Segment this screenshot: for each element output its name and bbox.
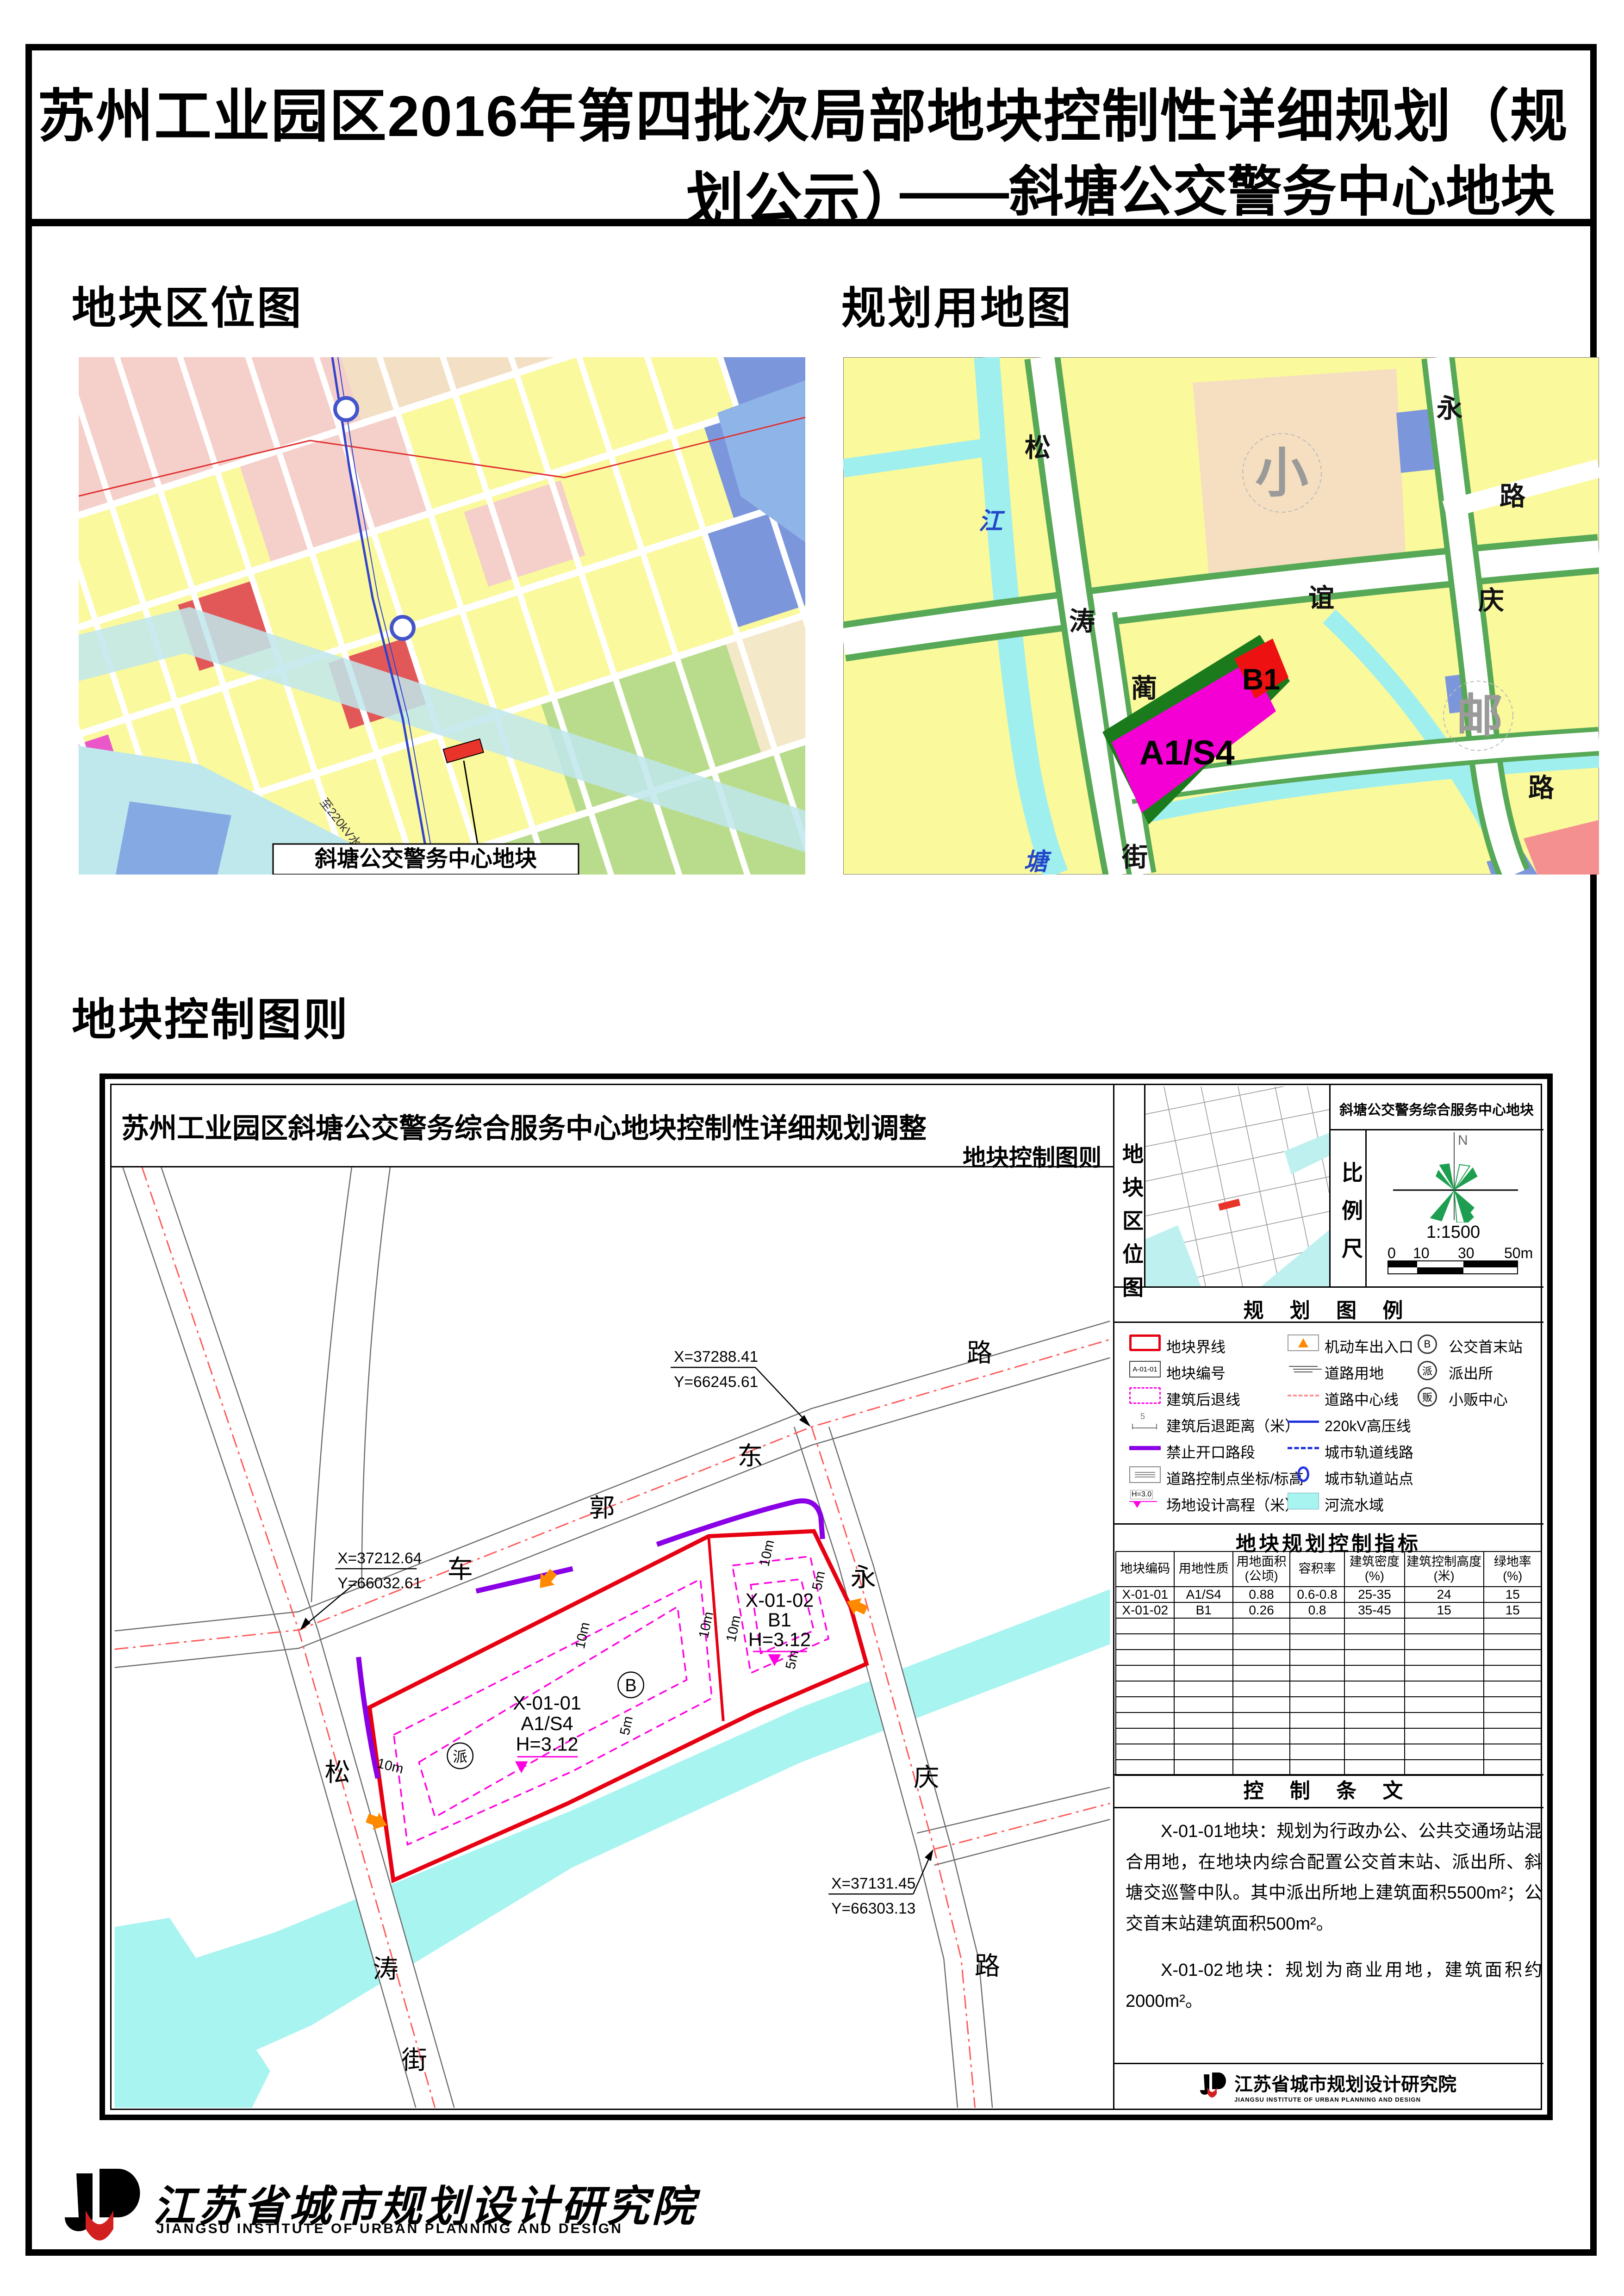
roadcenter-icon bbox=[1288, 1387, 1319, 1404]
legend-label: 道路控制点坐标/标高 bbox=[1166, 1467, 1304, 1489]
scale-tick: 10 bbox=[1413, 1245, 1430, 1262]
legend-label: 城市轨道站点 bbox=[1325, 1467, 1413, 1489]
coord-label: Y=66245.61 bbox=[674, 1374, 758, 1391]
legend-label: 机动车出入口 bbox=[1325, 1335, 1413, 1357]
setback-icon bbox=[1129, 1387, 1161, 1404]
table-header: 建筑控制高度(米) bbox=[1405, 1551, 1484, 1587]
institute-logo bbox=[1200, 2072, 1227, 2100]
hawker-icon: 贩 bbox=[1412, 1387, 1443, 1404]
boundary-icon bbox=[1129, 1334, 1161, 1351]
legend-label: 小贩中心 bbox=[1449, 1388, 1508, 1409]
police-icon: 派 bbox=[1412, 1361, 1443, 1378]
road-char: 街 bbox=[1121, 843, 1148, 872]
scale-tick: 50m bbox=[1504, 1245, 1533, 1262]
road-char: 东 bbox=[737, 1442, 763, 1471]
legend-label: 河流水域 bbox=[1325, 1494, 1384, 1515]
coord-label: X=37288.41 bbox=[674, 1348, 758, 1365]
table-cell: 25-35 bbox=[1344, 1587, 1405, 1602]
metrostation-icon bbox=[1288, 1466, 1319, 1483]
road-char: 永 bbox=[851, 1563, 876, 1592]
bus-terminal-mark: B bbox=[625, 1675, 637, 1695]
table-header: 用地面积(公顷) bbox=[1233, 1551, 1290, 1587]
road-char: 路 bbox=[975, 1951, 1000, 1980]
river-char: 塘 bbox=[1024, 849, 1052, 875]
table-cell: 0.26 bbox=[1233, 1602, 1290, 1618]
legend-label: 道路用地 bbox=[1325, 1362, 1384, 1383]
institute-block: 江苏省城市规划设计研究院 JIANGSU INSTITUTE OF URBAN … bbox=[1113, 2063, 1543, 2109]
table-header: 容积率 bbox=[1290, 1551, 1344, 1587]
elev-icon: H=3.0 bbox=[1129, 1493, 1161, 1509]
table-row: X-01-01A1/S40.880.6-0.825-352415 bbox=[1116, 1587, 1542, 1602]
table-cell: 15 bbox=[1484, 1602, 1542, 1618]
road-char: 车 bbox=[448, 1555, 473, 1583]
section-landuse-map: 规划用地图 bbox=[841, 272, 1073, 336]
callout-label: 斜塘公交警务中心地块 bbox=[315, 847, 537, 871]
footer-institute-en: JIANGSU INSTITUTE OF URBAN PLANNING AND … bbox=[156, 2221, 623, 2237]
code-icon: A-01-01 bbox=[1129, 1361, 1161, 1378]
panel-mini-map bbox=[1145, 1086, 1329, 1286]
road-char: 永 bbox=[1437, 394, 1462, 423]
river-char: 江 bbox=[978, 508, 1005, 535]
coord-label: X=37212.64 bbox=[337, 1550, 422, 1567]
legend-label: 场地设计高程（米） bbox=[1166, 1494, 1300, 1515]
table-empty-row bbox=[1116, 1728, 1542, 1744]
legend: 地块界线A-01-01地块编号建筑后退线5建筑后退距离（米）禁止开口路段道路控制… bbox=[1113, 1322, 1543, 1523]
location-map: 至220kV水乡变 斜塘公交警务中心地块 bbox=[79, 357, 805, 875]
table-cell: X-01-01 bbox=[1116, 1587, 1174, 1602]
provisions-body: X-01-01地块：规划为行政办公、公共交通场站混合用地，在地块内综合配置公交首… bbox=[1126, 1816, 1542, 2032]
road-char: 涛 bbox=[1069, 607, 1095, 636]
parcel1-height: H=3.12 bbox=[516, 1733, 579, 1755]
table-cell: 0.6-0.8 bbox=[1290, 1587, 1344, 1602]
road-char: 路 bbox=[967, 1338, 992, 1367]
scale-tick: 30 bbox=[1458, 1245, 1475, 1262]
north-compass: N bbox=[1365, 1130, 1543, 1222]
legend-label: 城市轨道线路 bbox=[1325, 1441, 1413, 1462]
road-char: 庆 bbox=[1478, 586, 1504, 615]
parcel2-use: B1 bbox=[768, 1609, 791, 1631]
road-char: 路 bbox=[1528, 773, 1555, 802]
block-char-you: 邮 bbox=[1456, 690, 1503, 742]
table-empty-row bbox=[1116, 1665, 1542, 1681]
table-header: 建筑密度(%) bbox=[1344, 1551, 1405, 1587]
metroline-icon bbox=[1288, 1440, 1319, 1457]
table-empty-row bbox=[1116, 1634, 1542, 1650]
plan-drawing: X=37288.41 Y=66245.61 X=37212.64 Y=66032… bbox=[112, 1167, 1113, 2108]
legend-label: 地块界线 bbox=[1166, 1335, 1226, 1357]
north-label: N bbox=[1458, 1133, 1468, 1148]
table-cell: 15 bbox=[1484, 1587, 1542, 1602]
table-empty-row bbox=[1116, 1744, 1542, 1760]
legend-label: 建筑后退距离（米） bbox=[1166, 1415, 1300, 1436]
legend-label: 地块编号 bbox=[1166, 1362, 1226, 1383]
table-header: 绿地率(%) bbox=[1484, 1551, 1542, 1587]
police-mark: 派 bbox=[453, 1748, 467, 1765]
legend-label: 220kV高压线 bbox=[1325, 1415, 1411, 1436]
road-char: 谊 bbox=[1308, 583, 1334, 613]
legend-label: 道路中心线 bbox=[1325, 1388, 1399, 1409]
entrance-icon bbox=[1288, 1334, 1319, 1351]
parcel-b1-label: B1 bbox=[1242, 663, 1280, 696]
parcel-a1s4-label: A1/S4 bbox=[1139, 733, 1235, 772]
section-location-map: 地块区位图 bbox=[72, 272, 303, 336]
table-empty-row bbox=[1116, 1697, 1542, 1713]
table-empty-row bbox=[1116, 1650, 1542, 1665]
parcel1-code: X-01-01 bbox=[513, 1692, 581, 1714]
provision-2: X-01-02地块：规划为商业用地，建筑面积约2000m²。 bbox=[1126, 1955, 1542, 2017]
table-empty-row bbox=[1116, 1618, 1542, 1634]
provisions-title: 控 制 条 文 bbox=[1113, 1774, 1543, 1804]
parcel1-use: A1/S4 bbox=[521, 1713, 573, 1734]
river-icon bbox=[1288, 1493, 1319, 1509]
table-empty-row bbox=[1116, 1713, 1542, 1728]
road-char: 涛 bbox=[373, 1955, 398, 1983]
institute-name-en: JIANGSU INSTITUTE OF URBAN PLANNING AND … bbox=[1234, 2096, 1456, 2103]
road-char: 松 bbox=[1025, 433, 1051, 462]
section-control-plan: 地块控制图则 bbox=[72, 984, 349, 1048]
ctrlpt-icon bbox=[1129, 1466, 1161, 1483]
control-indicator-table: 地块编码用地性质用地面积(公顷)容积率建筑密度(%)建筑控制高度(米)绿地率(%… bbox=[1115, 1551, 1542, 1776]
coord-label: X=37131.45 bbox=[831, 1875, 915, 1892]
institute-name-cn: 江苏省城市规划设计研究院 bbox=[1234, 2069, 1456, 2096]
table-cell: 15 bbox=[1405, 1602, 1484, 1618]
table-row: X-01-02B10.260.835-451515 bbox=[1116, 1602, 1542, 1618]
panel-title: 斜塘公交警务综合服务中心地块 bbox=[1331, 1088, 1542, 1129]
footer-logo bbox=[65, 2166, 146, 2245]
roadland-icon bbox=[1288, 1361, 1319, 1378]
road-char: 街 bbox=[402, 2046, 427, 2074]
table-empty-row bbox=[1116, 1760, 1542, 1775]
busstop-icon: B bbox=[1412, 1334, 1443, 1351]
page-subtitle: ——斜塘公交警务中心地块 bbox=[32, 147, 1555, 226]
table-cell: 0.88 bbox=[1233, 1587, 1290, 1602]
provision-1: X-01-01地块：规划为行政办公、公共交通场站混合用地，在地块内综合配置公交首… bbox=[1126, 1816, 1542, 1939]
block-char-xiao: 小 bbox=[1255, 444, 1308, 503]
scale-ratio: 1:1500 bbox=[1384, 1222, 1523, 1242]
title-divider bbox=[25, 219, 1597, 226]
road-char: 蔺 bbox=[1131, 674, 1157, 703]
table-header: 地块编码 bbox=[1116, 1551, 1174, 1587]
legend-title: 规 划 图 例 bbox=[1113, 1294, 1543, 1323]
table-empty-row bbox=[1116, 1681, 1542, 1697]
road-char: 郭 bbox=[589, 1493, 615, 1522]
legend-label: 派出所 bbox=[1449, 1362, 1493, 1383]
metro-station bbox=[392, 617, 414, 639]
coord-label: Y=66303.13 bbox=[831, 1900, 915, 1917]
legend-label: 公交首末站 bbox=[1449, 1335, 1523, 1357]
road-char: 松 bbox=[325, 1758, 350, 1787]
coord-label: Y=66032.61 bbox=[337, 1575, 422, 1592]
table-cell: X-01-02 bbox=[1116, 1602, 1174, 1618]
road-char: 庆 bbox=[914, 1763, 939, 1792]
parcel2-code: X-01-02 bbox=[746, 1589, 814, 1611]
scale-tick: 0 bbox=[1388, 1245, 1396, 1262]
legend-label: 建筑后退线 bbox=[1166, 1388, 1240, 1409]
parcel2-height: H=3.12 bbox=[748, 1628, 811, 1650]
table-cell: 35-45 bbox=[1344, 1602, 1405, 1618]
table-cell: 0.8 bbox=[1290, 1602, 1344, 1618]
metro-station bbox=[335, 398, 357, 420]
table-header: 用地性质 bbox=[1174, 1551, 1232, 1587]
scale-bar: 0103050m bbox=[1388, 1245, 1522, 1277]
panel-scale-label: 比例尺 bbox=[1336, 1161, 1366, 1282]
table-cell: A1/S4 bbox=[1174, 1587, 1232, 1602]
road-char: 路 bbox=[1500, 482, 1526, 511]
table-cell: B1 bbox=[1174, 1602, 1232, 1618]
table-cell: 24 bbox=[1405, 1587, 1484, 1602]
noopen-icon bbox=[1129, 1440, 1161, 1457]
legend-label: 禁止开口路段 bbox=[1166, 1441, 1255, 1462]
poster-page: 苏州工业园区2016年第四批次局部地块控制性详细规划（规划公示） ——斜塘公交警… bbox=[0, 0, 1624, 2296]
hvline-icon bbox=[1288, 1414, 1319, 1430]
landuse-map: 松 涛 蔺 街 谊 永 路 庆 路 江 塘 小 邮 A1/S4 B1 bbox=[843, 357, 1599, 875]
dist-icon: 5 bbox=[1129, 1414, 1161, 1430]
